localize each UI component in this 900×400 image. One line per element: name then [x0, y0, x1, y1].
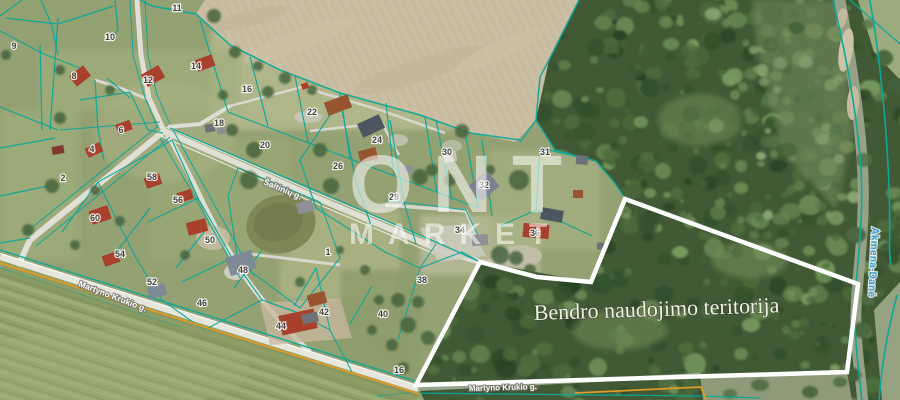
svg-text:Martyno Krukio g.: Martyno Krukio g.	[469, 382, 537, 393]
svg-text:60: 60	[90, 213, 100, 223]
svg-text:12: 12	[143, 75, 153, 85]
svg-text:10: 10	[105, 32, 115, 42]
svg-text:38: 38	[417, 275, 427, 285]
svg-text:26: 26	[333, 161, 343, 171]
svg-text:6: 6	[118, 125, 123, 135]
svg-text:18: 18	[214, 118, 224, 128]
svg-text:44: 44	[276, 321, 286, 331]
svg-text:16: 16	[394, 365, 404, 375]
svg-text:20: 20	[260, 140, 270, 150]
svg-text:52: 52	[147, 277, 157, 287]
svg-text:40: 40	[378, 309, 388, 319]
svg-text:MARKET: MARKET	[349, 218, 561, 251]
svg-text:48: 48	[238, 265, 248, 275]
svg-text:11: 11	[172, 3, 182, 13]
svg-text:8: 8	[71, 71, 76, 81]
svg-text:14: 14	[191, 61, 201, 71]
svg-text:46: 46	[197, 298, 207, 308]
svg-text:16: 16	[242, 84, 252, 94]
svg-text:22: 22	[307, 107, 317, 117]
svg-text:50: 50	[205, 235, 215, 245]
svg-text:ONT: ONT	[349, 139, 582, 230]
svg-text:58: 58	[147, 172, 157, 182]
svg-text:42: 42	[319, 307, 329, 317]
svg-text:56: 56	[173, 195, 183, 205]
svg-text:54: 54	[115, 249, 125, 259]
svg-text:2: 2	[60, 173, 65, 183]
svg-text:4: 4	[89, 144, 94, 154]
svg-text:9: 9	[11, 41, 16, 51]
svg-text:1: 1	[325, 247, 330, 257]
